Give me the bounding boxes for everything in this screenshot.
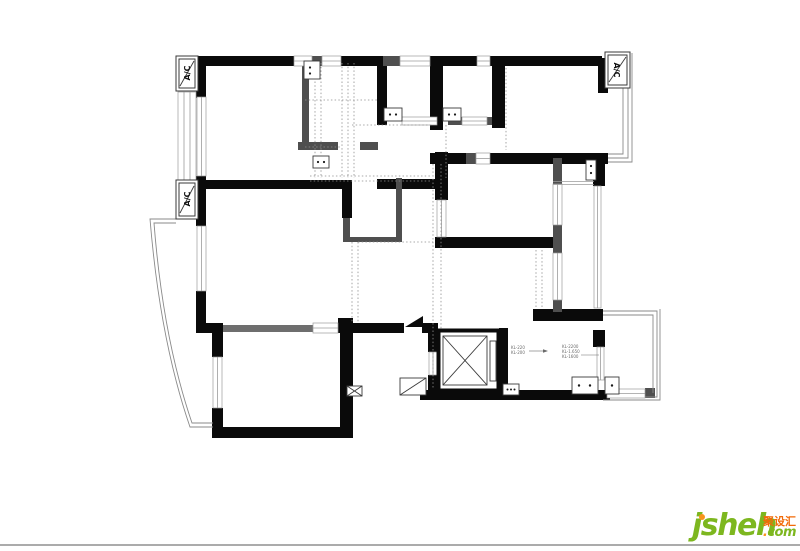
fixture-boxes-part — [589, 384, 591, 386]
walls-part — [430, 153, 466, 164]
jsheh-watermark: jsheh 聚设汇 .com — [692, 512, 796, 545]
fixture-boxes-part — [454, 113, 456, 115]
socket-box — [304, 61, 320, 79]
window — [553, 253, 562, 300]
window — [553, 184, 562, 225]
walls-part — [440, 56, 477, 66]
partition-walls-part — [466, 153, 476, 164]
floor-plan-drawing: A/C A/C A/C KL-220 KL- — [0, 0, 800, 551]
partition-walls-part — [553, 300, 562, 312]
fixture-boxes-part — [395, 113, 397, 115]
partition-walls-part — [343, 237, 402, 242]
socket-box — [313, 156, 329, 168]
window — [322, 56, 341, 66]
walls-part — [196, 56, 294, 66]
walls-part — [533, 309, 603, 321]
walls-part — [492, 56, 505, 128]
fixture-boxes-part — [309, 66, 311, 68]
balconies — [150, 53, 660, 427]
socket-box — [503, 384, 519, 395]
partition-walls-part — [487, 117, 492, 125]
walls-part — [212, 427, 352, 438]
door-threshold — [347, 386, 362, 396]
window — [477, 56, 490, 66]
partition-walls-part — [360, 142, 378, 150]
partition-walls-part — [553, 158, 562, 184]
watermark-tld: .com — [763, 525, 796, 540]
walls-part — [435, 237, 557, 248]
fixture-boxes-part — [586, 160, 596, 180]
fixture-boxes-part — [514, 389, 516, 391]
elevator — [439, 331, 499, 391]
floor-plan-page: A/C A/C A/C KL-220 KL- — [0, 0, 800, 551]
partition-walls-part — [223, 325, 313, 332]
ac-label: A/C — [183, 65, 192, 80]
socket-box — [443, 108, 461, 121]
walls-part — [342, 180, 352, 218]
fixture-boxes-part — [384, 108, 402, 121]
walls-part — [340, 320, 353, 438]
partition-walls-part — [645, 388, 655, 398]
level-annotations: KL-220 KL-200 KL-2200 KL-1.650 KL-1600 — [511, 344, 599, 359]
socket-box — [572, 377, 598, 394]
fixture-boxes-part — [448, 113, 450, 115]
pass-through-window — [402, 117, 437, 125]
window — [437, 200, 446, 237]
window — [197, 97, 206, 176]
walls-part — [212, 323, 223, 357]
fixture-boxes-part — [313, 156, 329, 168]
ac-unit-mid-left: A/C — [176, 180, 198, 219]
partition-walls-part — [396, 178, 402, 242]
level-annotations-part — [543, 349, 548, 352]
fixture-boxes-part — [323, 161, 325, 163]
watermark-com: com — [767, 525, 796, 540]
window — [400, 56, 430, 66]
bay-window-left-top — [178, 92, 196, 180]
level-annotation: KL-1600 — [562, 354, 579, 359]
socket-box — [586, 160, 596, 180]
fixture-boxes-part — [443, 108, 461, 121]
ac-label: A/C — [183, 191, 192, 206]
window — [313, 323, 338, 333]
fixture-boxes-part — [304, 61, 320, 79]
walls-part — [593, 330, 605, 347]
fixture-boxes-part — [309, 72, 311, 74]
window — [197, 226, 206, 291]
ramp-symbol — [400, 378, 426, 395]
fixture-boxes-part — [317, 161, 319, 163]
window — [597, 347, 604, 380]
socket-box — [384, 108, 402, 121]
fixture-boxes-part — [510, 389, 512, 391]
ac-label: A/C — [612, 63, 621, 78]
entry-door-swing — [405, 316, 423, 327]
bottom-divider-line — [0, 544, 800, 546]
fixture-boxes-part — [572, 377, 598, 394]
fixture-boxes-part — [389, 113, 391, 115]
fixture-boxes-part — [590, 165, 592, 167]
walls-part — [377, 179, 438, 189]
window — [462, 117, 487, 125]
fixture-boxes-part — [578, 384, 580, 386]
fixture-boxes-part — [590, 172, 592, 174]
elevator-counterweight — [490, 341, 496, 381]
level-annotation: KL-200 — [511, 350, 525, 355]
ac-unit-top-left: A/C — [176, 56, 198, 91]
window — [476, 153, 490, 164]
walls-part — [340, 323, 404, 333]
windows-part — [178, 92, 196, 180]
top-right-balcony-outline — [608, 88, 623, 154]
watermark-j-dot — [699, 514, 705, 520]
walls-part — [490, 56, 602, 66]
window — [213, 357, 222, 408]
partition-walls-part — [383, 56, 400, 66]
socket-box — [605, 377, 619, 394]
partition-walls-part — [298, 142, 338, 150]
ac-unit-top-right: A/C — [605, 52, 630, 88]
window — [594, 186, 601, 308]
partition-walls-part — [553, 225, 562, 253]
fixture-boxes-part — [611, 384, 613, 386]
fixture-boxes-part — [507, 389, 509, 391]
